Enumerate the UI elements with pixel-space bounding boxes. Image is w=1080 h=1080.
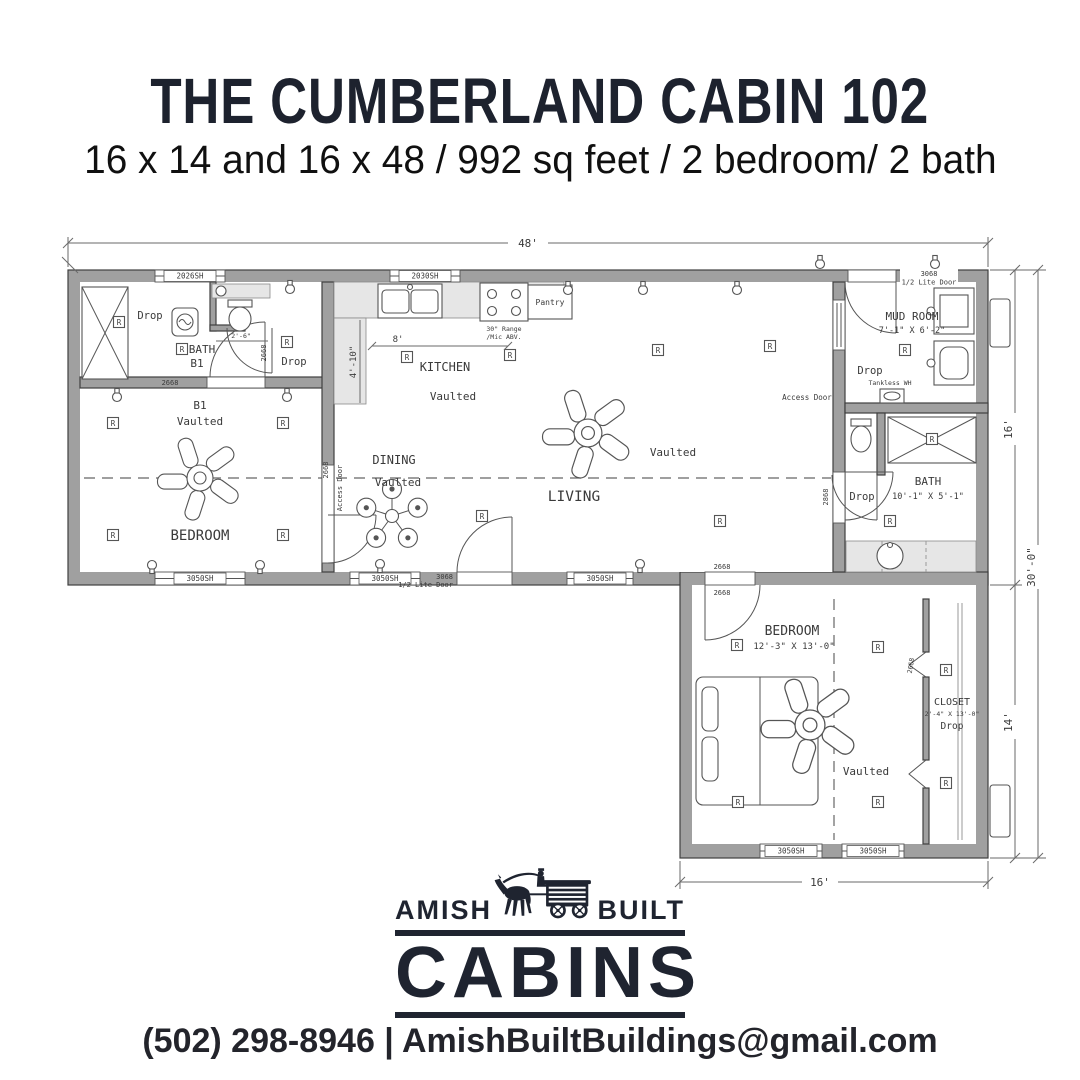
exhaust-fan-icon [172,308,198,336]
label-bedroom2-size: 12'-3" X 13'-0" [753,642,834,652]
exterior-unit [990,785,1010,837]
label-b1: B1 [193,399,206,412]
dim-right-lower: 14' [1002,712,1015,732]
subheader: 16 x 14 and 16 x 48 / 992 sq feet / 2 be… [0,138,1080,183]
label-bedroom2: BEDROOM [765,624,820,639]
label-drop: Drop [281,356,306,368]
contact-line: (502) 298-8946 | AmishBuiltBuildings@gma… [142,1022,937,1060]
page-subtitle: 16 x 14 and 16 x 48 / 992 sq feet / 2 be… [84,138,996,183]
label-bedroom1: BEDROOM [170,528,229,544]
label-drop: Drop [857,365,882,377]
door-label-2668: 2668 [260,345,268,362]
label-drop: Drop [941,721,964,732]
label-range1: 30" Range [486,325,521,333]
label-pantry: Pantry [536,298,565,307]
utility-sink-icon [927,341,974,385]
label-closet-size: 2'-4" X 13'-0" [925,710,980,718]
door-label-3068-sub: 1/2 Lite Door [902,279,957,287]
label-bath-b1: BATH [189,343,216,356]
door-label-3068: 3068 [436,573,453,581]
window-label-3050sh: 3050SH [859,847,887,856]
logo-cabins: CABINS [395,937,685,1010]
door-label-3068-sub: 1/2 Lite Door [398,581,453,589]
label-living: LIVING [548,489,600,505]
window-label-2030sh: 2030SH [411,272,439,281]
label-tankless: Tankless WH [868,379,911,387]
label-vaulted: Vaulted [375,476,421,489]
window-label-3050sh: 3050SH [371,574,399,583]
label-drop: Drop [849,491,874,503]
vanity-sink-icon [877,543,903,570]
label-drop: Drop [137,310,162,322]
door-label-2668: 2668 [162,379,179,387]
floor-plan-svg: R [60,225,1060,905]
tankless-heater-icon [880,389,904,403]
dim-kitchen-w: 8' [393,335,404,345]
door-label-2868: 2868 [822,489,830,506]
door-label-2668: 2668 [322,462,330,479]
shower-icon [82,287,128,379]
horse-wagon-logo-icon [492,856,598,928]
door-label-2668: 2668 [714,589,731,597]
exterior-unit [990,299,1010,347]
logo-rule-bottom [395,1012,685,1018]
logo-built: BUILT [598,897,685,928]
label-vaulted: Vaulted [430,390,476,403]
label-vaulted: Vaulted [843,765,889,778]
door-label-3068: 3068 [921,270,938,278]
label-closet: CLOSET [934,697,970,708]
page-title: THE CUMBERLAND CABIN 102 [151,64,930,138]
range-icon [480,283,528,321]
dim-right-upper: 16' [1002,419,1015,439]
access-door-label: Access Door [336,465,344,511]
label-bath-b1-sub: B1 [190,357,203,370]
window-label-3050sh: 3050SH [777,847,805,856]
label-mudroom: MUD ROOM [886,310,939,323]
dim-right-overall: 30'-0" [1025,547,1038,587]
logo-amish: AMISH [395,897,492,928]
label-range2: /Mic ABV. [486,333,521,341]
label-bath2: BATH [915,475,942,488]
window-label-3050sh: 3050SH [186,574,214,583]
label-dining: DINING [372,453,415,467]
logo: AMISH [0,856,1080,1019]
dim-bath1: 2'-6" [231,332,251,340]
access-door-label: Access Door [782,393,832,402]
header: THE CUMBERLAND CABIN 102 [0,64,1080,138]
label-kitchen: KITCHEN [420,360,471,374]
window-label-2026sh: 2026SH [176,272,204,281]
label-bath2-size: 10'-1" X 5'-1" [892,492,964,502]
toilet-icon [851,419,871,452]
dim-kitchen-d: 4'-10" [349,346,359,379]
kitchen-sink-icon [378,284,442,318]
footer: (502) 298-8946 | AmishBuiltBuildings@gma… [0,1022,1080,1061]
floor-plan: R [60,225,1060,905]
poster: THE CUMBERLAND CABIN 102 16 x 14 and 16 … [0,0,1080,1080]
label-mudroom-size: 7'-1" X 6'-2" [879,326,946,336]
window-label-3050sh: 3050SH [586,574,614,583]
dim-top: 48' [518,237,538,250]
label-vaulted: Vaulted [650,446,696,459]
label-vaulted: Vaulted [177,415,223,428]
door-label-2668: 2668 [714,563,731,571]
